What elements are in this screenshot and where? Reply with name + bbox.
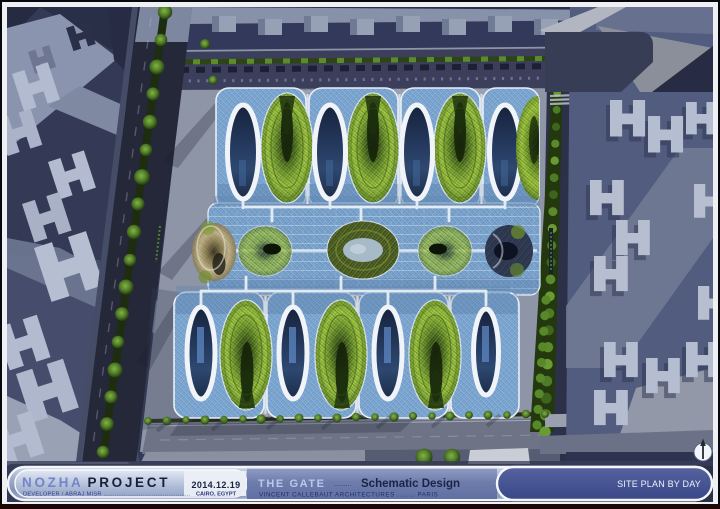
svg-text:.........: ......... [334,481,352,488]
svg-text:2014.12.19: 2014.12.19 [191,480,240,490]
svg-text:SITE PLAN BY DAY: SITE PLAN BY DAY [617,479,701,489]
svg-text:Schematic Design: Schematic Design [361,478,460,490]
svg-text:THE GATE: THE GATE [258,478,326,490]
svg-text:DEVELOPER / ABRAJ MISR .......: DEVELOPER / ABRAJ MISR .................… [23,492,191,498]
svg-text:CAIRO, EGYPT: CAIRO, EGYPT [196,492,237,498]
svg-text:VINCENT CALLEBAUT ARCHITECTURE: VINCENT CALLEBAUT ARCHITECTURES ........… [259,492,438,499]
svg-text:NOZHAPROJECT: NOZHAPROJECT [22,475,170,490]
